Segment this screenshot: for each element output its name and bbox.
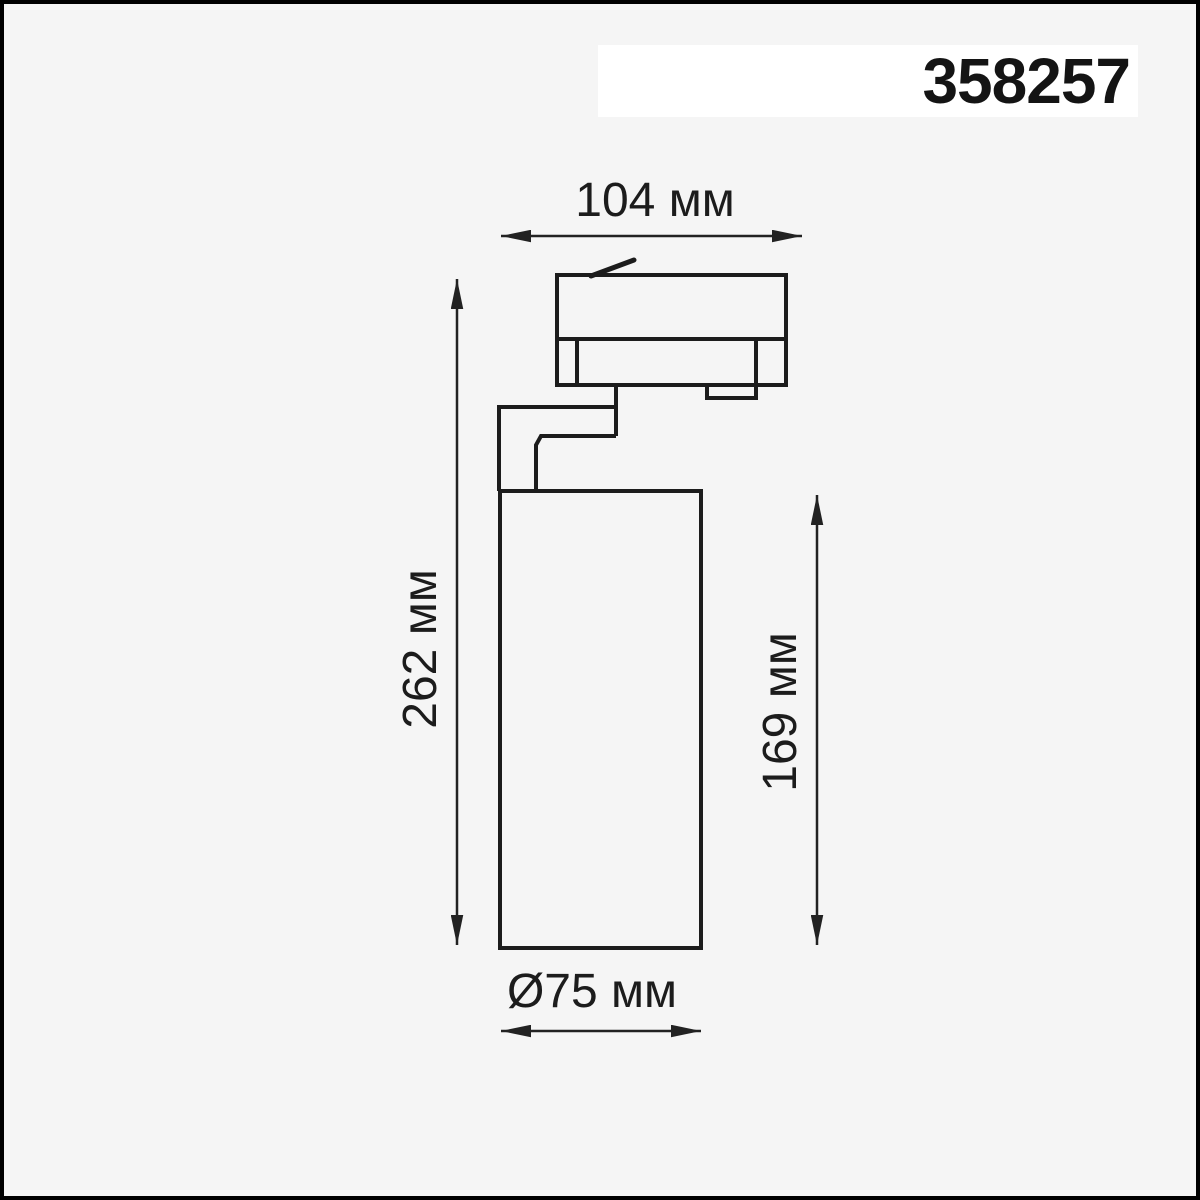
mounting-arm — [499, 407, 616, 491]
adapter-latch — [707, 385, 756, 398]
dim-label-diameter: Ø75 мм — [392, 964, 792, 1020]
dim-label-body-height: 169 мм — [753, 512, 809, 912]
dim-label-width: 104 мм — [455, 173, 855, 229]
product-dimension-image: 358257 — [0, 0, 1200, 1200]
dim-label-total-height: 262 мм — [393, 449, 449, 849]
cylinder-body — [500, 491, 701, 948]
track-adapter-bottom — [557, 339, 786, 385]
track-adapter-top — [557, 275, 786, 339]
fixture-outline — [499, 260, 786, 948]
